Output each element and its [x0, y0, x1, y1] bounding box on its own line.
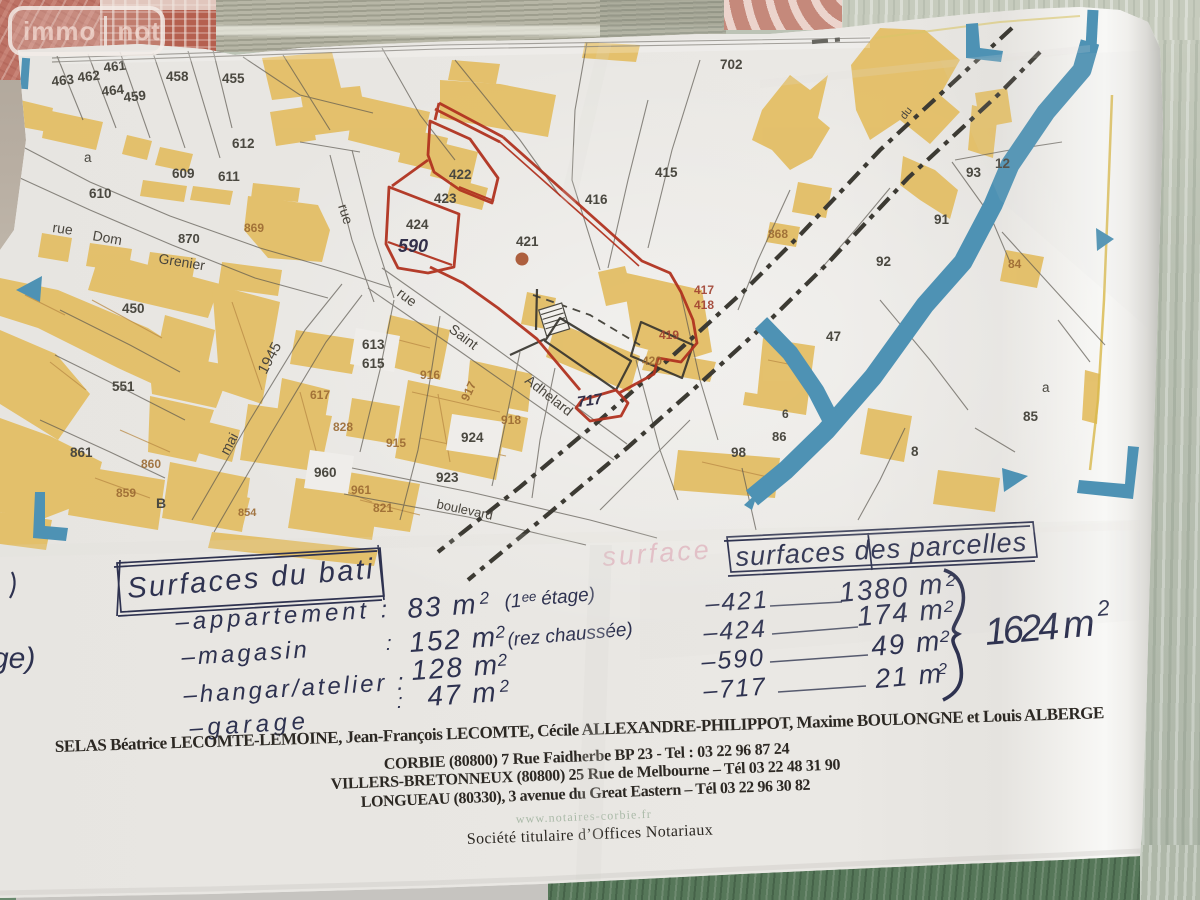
svg-text:–hangar/atelier :: –hangar/atelier :	[182, 668, 406, 709]
svg-text:915: 915	[386, 436, 406, 450]
svg-text:961: 961	[351, 483, 371, 497]
svg-text:86: 86	[772, 429, 786, 444]
svg-text:417: 417	[694, 283, 714, 297]
svg-text:91: 91	[934, 212, 950, 227]
svg-text:rue: rue	[394, 285, 420, 310]
svg-text:2: 2	[937, 661, 947, 678]
svg-text:(1ᵉᵉ étage): (1ᵉᵉ étage)	[504, 584, 596, 613]
svg-text:462: 462	[77, 68, 101, 85]
svg-text:617: 617	[310, 388, 330, 402]
svg-text:609: 609	[172, 166, 195, 181]
svg-text:(rez chaussée): (rez chaussée)	[507, 619, 634, 651]
svg-text:2: 2	[498, 676, 510, 696]
svg-text:463: 463	[51, 72, 75, 89]
svg-text:612: 612	[232, 136, 255, 151]
svg-text:424: 424	[406, 217, 429, 232]
svg-text:6: 6	[782, 407, 789, 421]
svg-text:828: 828	[333, 420, 353, 434]
svg-text:–717: –717	[701, 673, 767, 705]
svg-text:93: 93	[966, 165, 982, 180]
svg-text:422: 422	[449, 167, 472, 182]
svg-text:869: 869	[244, 221, 264, 235]
svg-text:455: 455	[222, 71, 245, 86]
svg-text:B: B	[156, 495, 166, 511]
svg-text:859: 859	[116, 486, 136, 500]
svg-text:923: 923	[436, 470, 459, 485]
svg-text:918: 918	[501, 413, 521, 427]
svg-text:821: 821	[373, 501, 393, 515]
svg-text:960: 960	[314, 465, 337, 480]
svg-text:860: 860	[141, 457, 161, 471]
svg-text:551: 551	[112, 379, 135, 394]
svg-text:458: 458	[166, 69, 189, 84]
svg-text:868: 868	[768, 227, 788, 241]
svg-text:916: 916	[420, 368, 440, 382]
svg-text:98: 98	[731, 445, 747, 460]
svg-text:2: 2	[478, 588, 490, 608]
svg-text:420: 420	[642, 354, 662, 368]
svg-text:416: 416	[585, 192, 608, 207]
svg-text:924: 924	[461, 430, 484, 445]
svg-text:2: 2	[494, 622, 506, 642]
svg-text:702: 702	[720, 57, 743, 72]
svg-text:a: a	[1042, 380, 1050, 395]
svg-text:84: 84	[1008, 257, 1022, 271]
svg-text:615: 615	[362, 356, 385, 371]
svg-text:21 m: 21 m	[873, 658, 944, 694]
svg-text::: :	[386, 633, 392, 655]
svg-text:Saint: Saint	[446, 321, 481, 353]
svg-text:rue: rue	[52, 219, 74, 238]
svg-text:450: 450	[122, 301, 145, 316]
svg-text:613: 613	[362, 337, 385, 352]
svg-text:861: 861	[70, 445, 93, 460]
svg-text:590: 590	[398, 236, 428, 256]
svg-text:423: 423	[434, 191, 457, 206]
svg-text:47 m: 47 m	[426, 676, 498, 712]
svg-text:8: 8	[911, 444, 919, 459]
svg-text:85: 85	[1023, 409, 1039, 424]
svg-text:a: a	[84, 150, 92, 165]
svg-text:717: 717	[576, 391, 604, 411]
svg-text:419: 419	[659, 328, 679, 342]
svg-text:610: 610	[89, 186, 112, 201]
svg-text:870: 870	[178, 231, 200, 246]
svg-text:611: 611	[218, 169, 240, 184]
svg-text:ge): ge)	[0, 642, 35, 675]
svg-text::: :	[397, 691, 403, 713]
svg-text:–magasin: –magasin	[180, 636, 310, 671]
svg-text:854: 854	[238, 507, 257, 519]
svg-text:92: 92	[876, 254, 891, 269]
svg-text:418: 418	[694, 298, 714, 312]
svg-text:464: 464	[101, 82, 125, 99]
svg-text:2: 2	[496, 650, 508, 670]
svg-text:boulevard: boulevard	[435, 496, 494, 523]
svg-text:459: 459	[123, 88, 147, 105]
svg-text:421: 421	[516, 234, 539, 249]
svg-text:83 m: 83 m	[406, 588, 478, 624]
svg-text:rue: rue	[335, 202, 357, 226]
svg-text:Adhelard: Adhelard	[522, 372, 576, 419]
svg-text:415: 415	[655, 165, 678, 180]
svg-text:47: 47	[826, 329, 841, 344]
